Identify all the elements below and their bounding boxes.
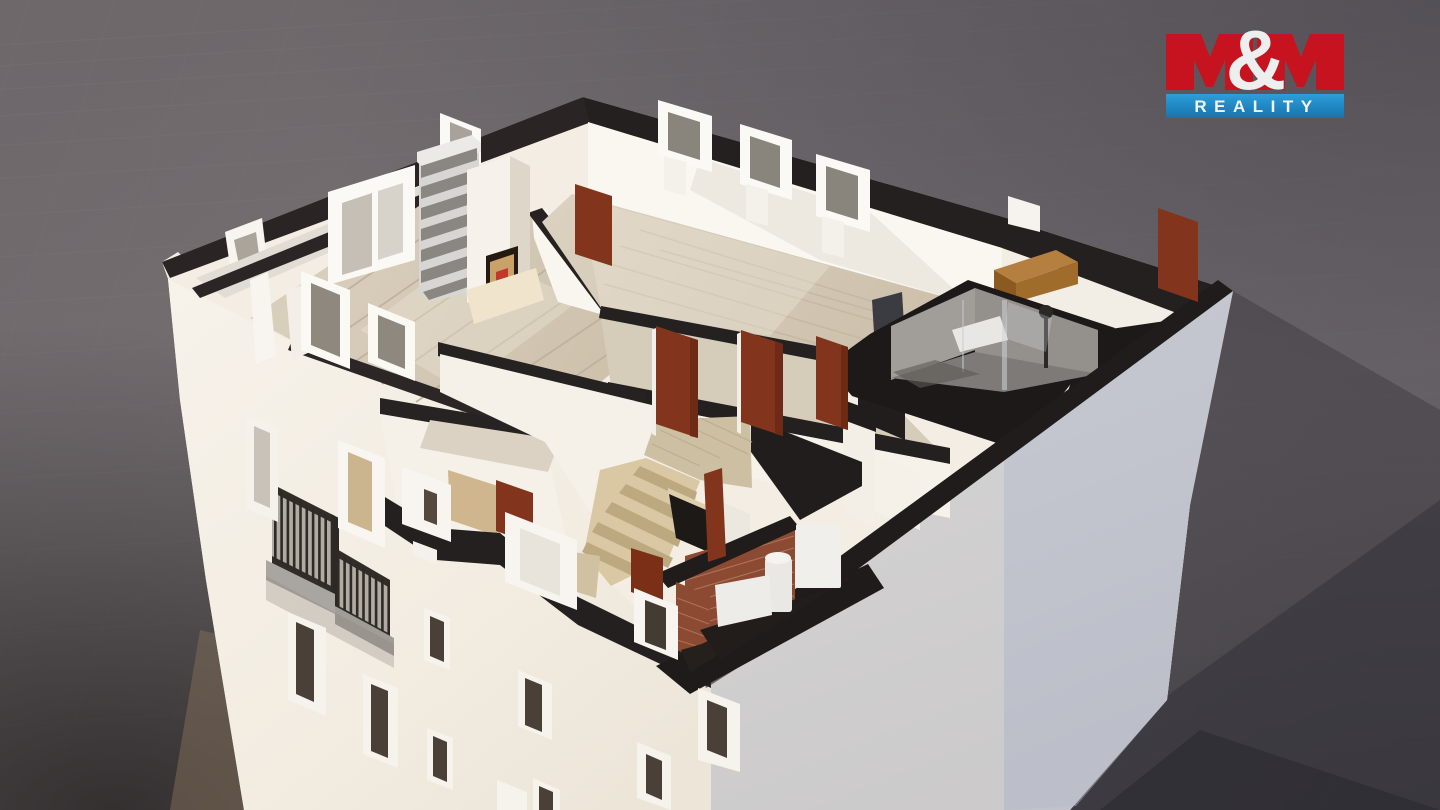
svg-text:&: & <box>1226 13 1287 107</box>
